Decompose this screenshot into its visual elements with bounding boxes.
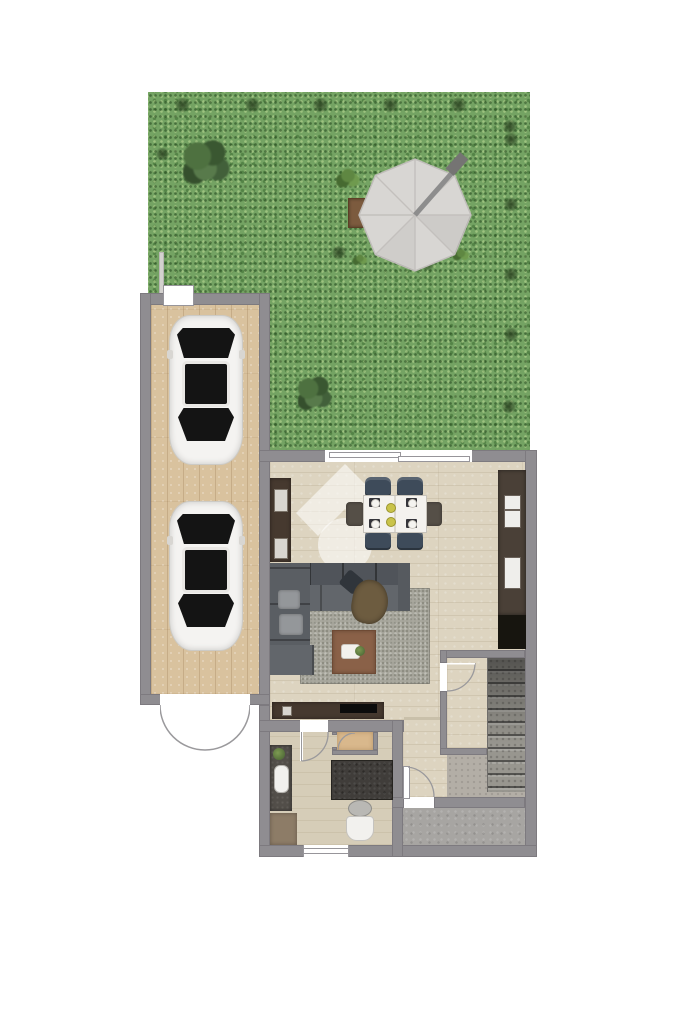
plate: [408, 520, 417, 529]
floor-plan-canvas: [0, 0, 683, 1024]
sofa-pillow: [279, 614, 303, 635]
car-sunroof: [182, 547, 230, 593]
tv-sideboard-deco: [282, 706, 292, 716]
car-rear-window: [178, 408, 234, 441]
garage-wall-left: [140, 293, 151, 705]
dining-end-chair: [346, 502, 364, 526]
hedge-square: [503, 120, 517, 133]
dining-chair: [397, 530, 423, 550]
hedge-square: [504, 328, 518, 341]
sliding-door-panel: [329, 452, 401, 458]
large-shrub: [183, 140, 231, 186]
sofa-pillow: [278, 590, 300, 609]
dining-chair: [397, 477, 423, 497]
kitchen-hob: [504, 557, 521, 589]
stair-enclosure-wall-top: [440, 650, 525, 658]
garage-door-swing-arcs: [160, 705, 250, 752]
bathroom-door-opening: [300, 720, 328, 732]
bath-cabinet: [270, 813, 297, 845]
bathroom-sink: [274, 765, 289, 793]
plate: [371, 499, 380, 508]
toilet-bowl: [346, 816, 374, 841]
garage-wall-top: [140, 293, 270, 305]
sliding-door-panel: [398, 456, 470, 462]
hedge-square: [175, 98, 190, 112]
closet-wall-left: [440, 691, 447, 755]
hedge-square: [383, 98, 398, 112]
plate: [371, 520, 380, 529]
closet-wall-left: [440, 650, 447, 663]
car-mirror: [167, 350, 173, 359]
hedge-square: [504, 268, 518, 281]
shower: [331, 760, 393, 800]
front-door-swing: [408, 767, 435, 798]
storage-door-swing: [338, 733, 358, 751]
car-mirror: [239, 536, 245, 545]
car-windshield: [177, 514, 235, 544]
car-1: [170, 316, 242, 464]
hedge-square: [313, 98, 328, 112]
garage-garden-door: [163, 285, 194, 306]
car-mirror: [239, 350, 245, 359]
storage-wall: [373, 732, 378, 750]
kitchen-counter: [498, 470, 526, 615]
house-wall-right: [525, 450, 537, 857]
toilet-seat: [348, 800, 372, 817]
kitchen-sink: [504, 510, 521, 528]
shrub-near-house: [298, 376, 332, 412]
serving-bowl: [386, 517, 396, 527]
entry-wall: [434, 797, 525, 808]
sofa-ottoman: [270, 645, 314, 675]
bathroom-window: [303, 845, 349, 857]
closet-wall-bottom: [440, 748, 487, 755]
bathroom-door-swing: [300, 732, 329, 763]
floor-threshold: [404, 717, 440, 720]
hedge-square: [245, 98, 260, 112]
closet-door-swing: [447, 663, 476, 692]
hedge-square: [451, 98, 466, 112]
garage-house-shared-wall: [259, 293, 270, 705]
hedge-square: [504, 133, 518, 146]
garage-door-opening: [160, 694, 250, 705]
car-2: [170, 502, 242, 650]
plate: [408, 499, 417, 508]
kitchen-sink: [504, 495, 521, 510]
sideboard-deco: [274, 538, 288, 559]
sofa-arm: [398, 563, 410, 611]
bathroom-plant: [273, 748, 285, 760]
fridge: [498, 615, 526, 649]
car-sunroof: [182, 361, 230, 407]
dining-chair: [365, 530, 391, 550]
living-bath-wall: [259, 720, 404, 732]
car-rear-window: [178, 594, 234, 627]
sideboard-deco: [274, 489, 288, 512]
closet-door-opening: [440, 663, 447, 691]
dining-chair: [365, 477, 391, 497]
parasol: [358, 152, 474, 274]
staircase: [487, 658, 526, 792]
hedge-square: [156, 148, 169, 160]
fern-plant: [336, 162, 360, 192]
hedge-square: [502, 400, 516, 413]
car-windshield: [177, 328, 235, 358]
small-bush: [332, 246, 346, 259]
coffee-table-plant: [355, 646, 365, 656]
serving-bowl: [386, 503, 396, 513]
storage-wall: [332, 732, 337, 735]
hedge-square: [504, 198, 518, 211]
entry-floor: [403, 808, 525, 845]
car-mirror: [167, 536, 173, 545]
tv: [340, 704, 377, 713]
bath-hall-wall: [392, 720, 403, 857]
